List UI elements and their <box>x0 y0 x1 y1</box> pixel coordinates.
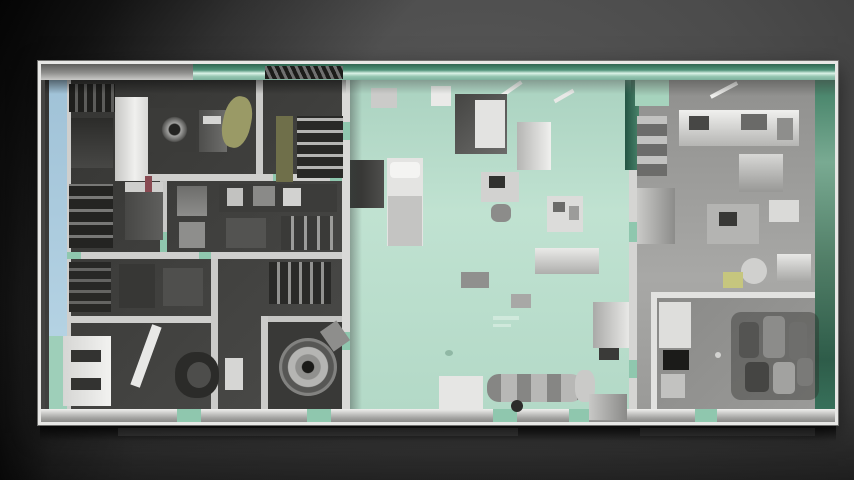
scene <box>0 0 854 480</box>
br-desk <box>659 302 691 348</box>
lw-dark-unit <box>71 118 113 168</box>
lw-olive-mat <box>276 116 293 182</box>
lw-counter-l-top <box>125 182 163 192</box>
br-chair-6 <box>797 358 813 386</box>
top-wall-window-hatch <box>265 66 343 79</box>
lw-shelves-mid <box>69 184 113 248</box>
hall-side-item-1 <box>553 202 565 212</box>
door-accent-7 <box>342 122 350 140</box>
hall-bed-pillow <box>390 162 420 178</box>
hall-divider-cabinet <box>593 302 629 348</box>
door-accent-10 <box>629 360 637 378</box>
br-chair-3 <box>789 322 807 360</box>
hall-bed-blanket <box>388 196 422 246</box>
lw-low-c <box>269 262 331 304</box>
lw-low-b <box>163 268 203 306</box>
door-gap-4 <box>569 409 589 422</box>
br-chair-1 <box>739 322 759 358</box>
rw-counter-item-1 <box>689 116 709 130</box>
lw-shelves-low <box>69 262 111 312</box>
leftwing-top-shade <box>45 80 346 94</box>
rw-white-box <box>769 200 799 222</box>
door-gap-2 <box>307 409 331 422</box>
hall-floor-line-1 <box>493 316 519 320</box>
rw-desk-monitor <box>719 212 737 226</box>
lw-cabinet-bl <box>63 336 111 406</box>
blue-corridor-floor <box>49 80 67 336</box>
hall-trolley <box>535 248 599 274</box>
lw-equip-e1 <box>226 218 266 248</box>
rw-unit-3 <box>777 254 811 282</box>
lw-equip-c1 <box>177 186 207 216</box>
lw-round-machine <box>279 338 337 396</box>
lw-drawer-2 <box>71 378 101 390</box>
leftwing-vwall-4 <box>261 316 268 409</box>
lw-equip-d3 <box>283 188 301 206</box>
lw-washer-door <box>161 116 188 143</box>
hall-white-unit <box>517 122 551 170</box>
hall-cart <box>511 294 531 308</box>
hall-floor-line-2 <box>493 324 511 327</box>
hall-side-item-2 <box>569 206 579 220</box>
hall-seat <box>461 272 489 288</box>
top-wall-left <box>41 64 193 80</box>
lw-shelf-items <box>297 116 343 178</box>
door-gap-1 <box>177 409 201 422</box>
br-cabinet <box>661 374 685 398</box>
door-accent-6 <box>199 252 211 259</box>
br-chair-5 <box>773 362 795 394</box>
hall-desk-chair <box>491 204 511 222</box>
hall-gurney-wheel <box>511 400 523 412</box>
rw-yellow-box <box>723 272 743 288</box>
hall-top-shade <box>346 80 631 94</box>
hall-big-cabinet-front <box>475 100 505 148</box>
lw-machine-b-tick <box>203 116 221 124</box>
lw-equip-d2 <box>253 186 275 206</box>
lw-wardrobe <box>115 97 148 181</box>
door-accent-5 <box>67 252 81 259</box>
leftwing-hwall-3 <box>67 316 211 323</box>
br-chair-2 <box>763 316 785 358</box>
hall-floor-speck <box>445 350 453 356</box>
floor-plan-render <box>41 64 835 422</box>
door-accent-9 <box>629 222 637 242</box>
rw-machine <box>739 154 783 192</box>
lw-red-item <box>145 176 152 192</box>
hall-left-shade <box>350 80 362 409</box>
lw-equip-e2 <box>281 216 333 250</box>
br-floor-dot <box>715 352 721 358</box>
leftwing-vwall-1 <box>256 80 263 174</box>
rw-cabinet-2 <box>637 188 675 244</box>
floor-reflection-right <box>640 428 815 436</box>
hall-gurney <box>487 374 583 402</box>
lw-drawer-1 <box>71 350 101 362</box>
rightwing-top-shade <box>631 80 835 96</box>
hall-table-bottom <box>439 376 483 410</box>
br-chair-4 <box>745 362 769 392</box>
hall-desk-monitor <box>489 176 505 188</box>
hall-divider-cabinet-dark <box>599 348 619 360</box>
br-monitor <box>663 350 689 370</box>
rw-counter-item-3 <box>777 118 793 140</box>
lw-sink <box>225 358 243 390</box>
lw-toilet-inner <box>187 362 211 388</box>
floor-reflection-left <box>118 428 518 436</box>
door-gap-5 <box>695 409 717 422</box>
lw-equip-d1 <box>227 188 243 206</box>
lw-low-a <box>119 264 155 308</box>
floor-plan <box>38 61 838 425</box>
lw-equip-c2 <box>179 222 205 248</box>
rw-equip-left <box>637 116 667 176</box>
hall-equip-bottom <box>589 394 627 420</box>
rw-counter-item-2 <box>741 114 767 130</box>
rw-cylinder <box>741 258 767 284</box>
